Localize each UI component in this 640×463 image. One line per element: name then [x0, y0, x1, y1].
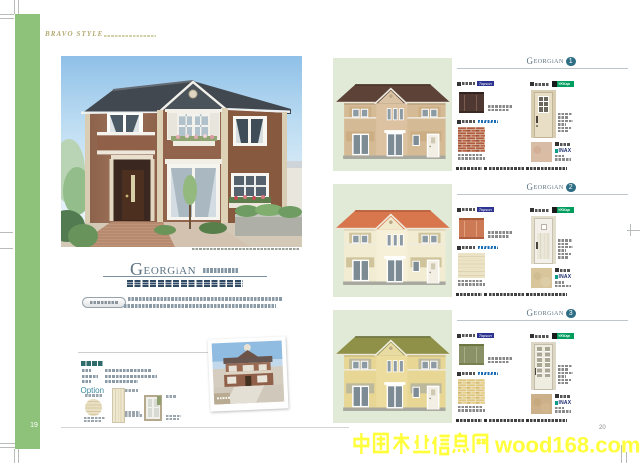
svg-text:wood168.com: wood168.com	[494, 433, 640, 458]
